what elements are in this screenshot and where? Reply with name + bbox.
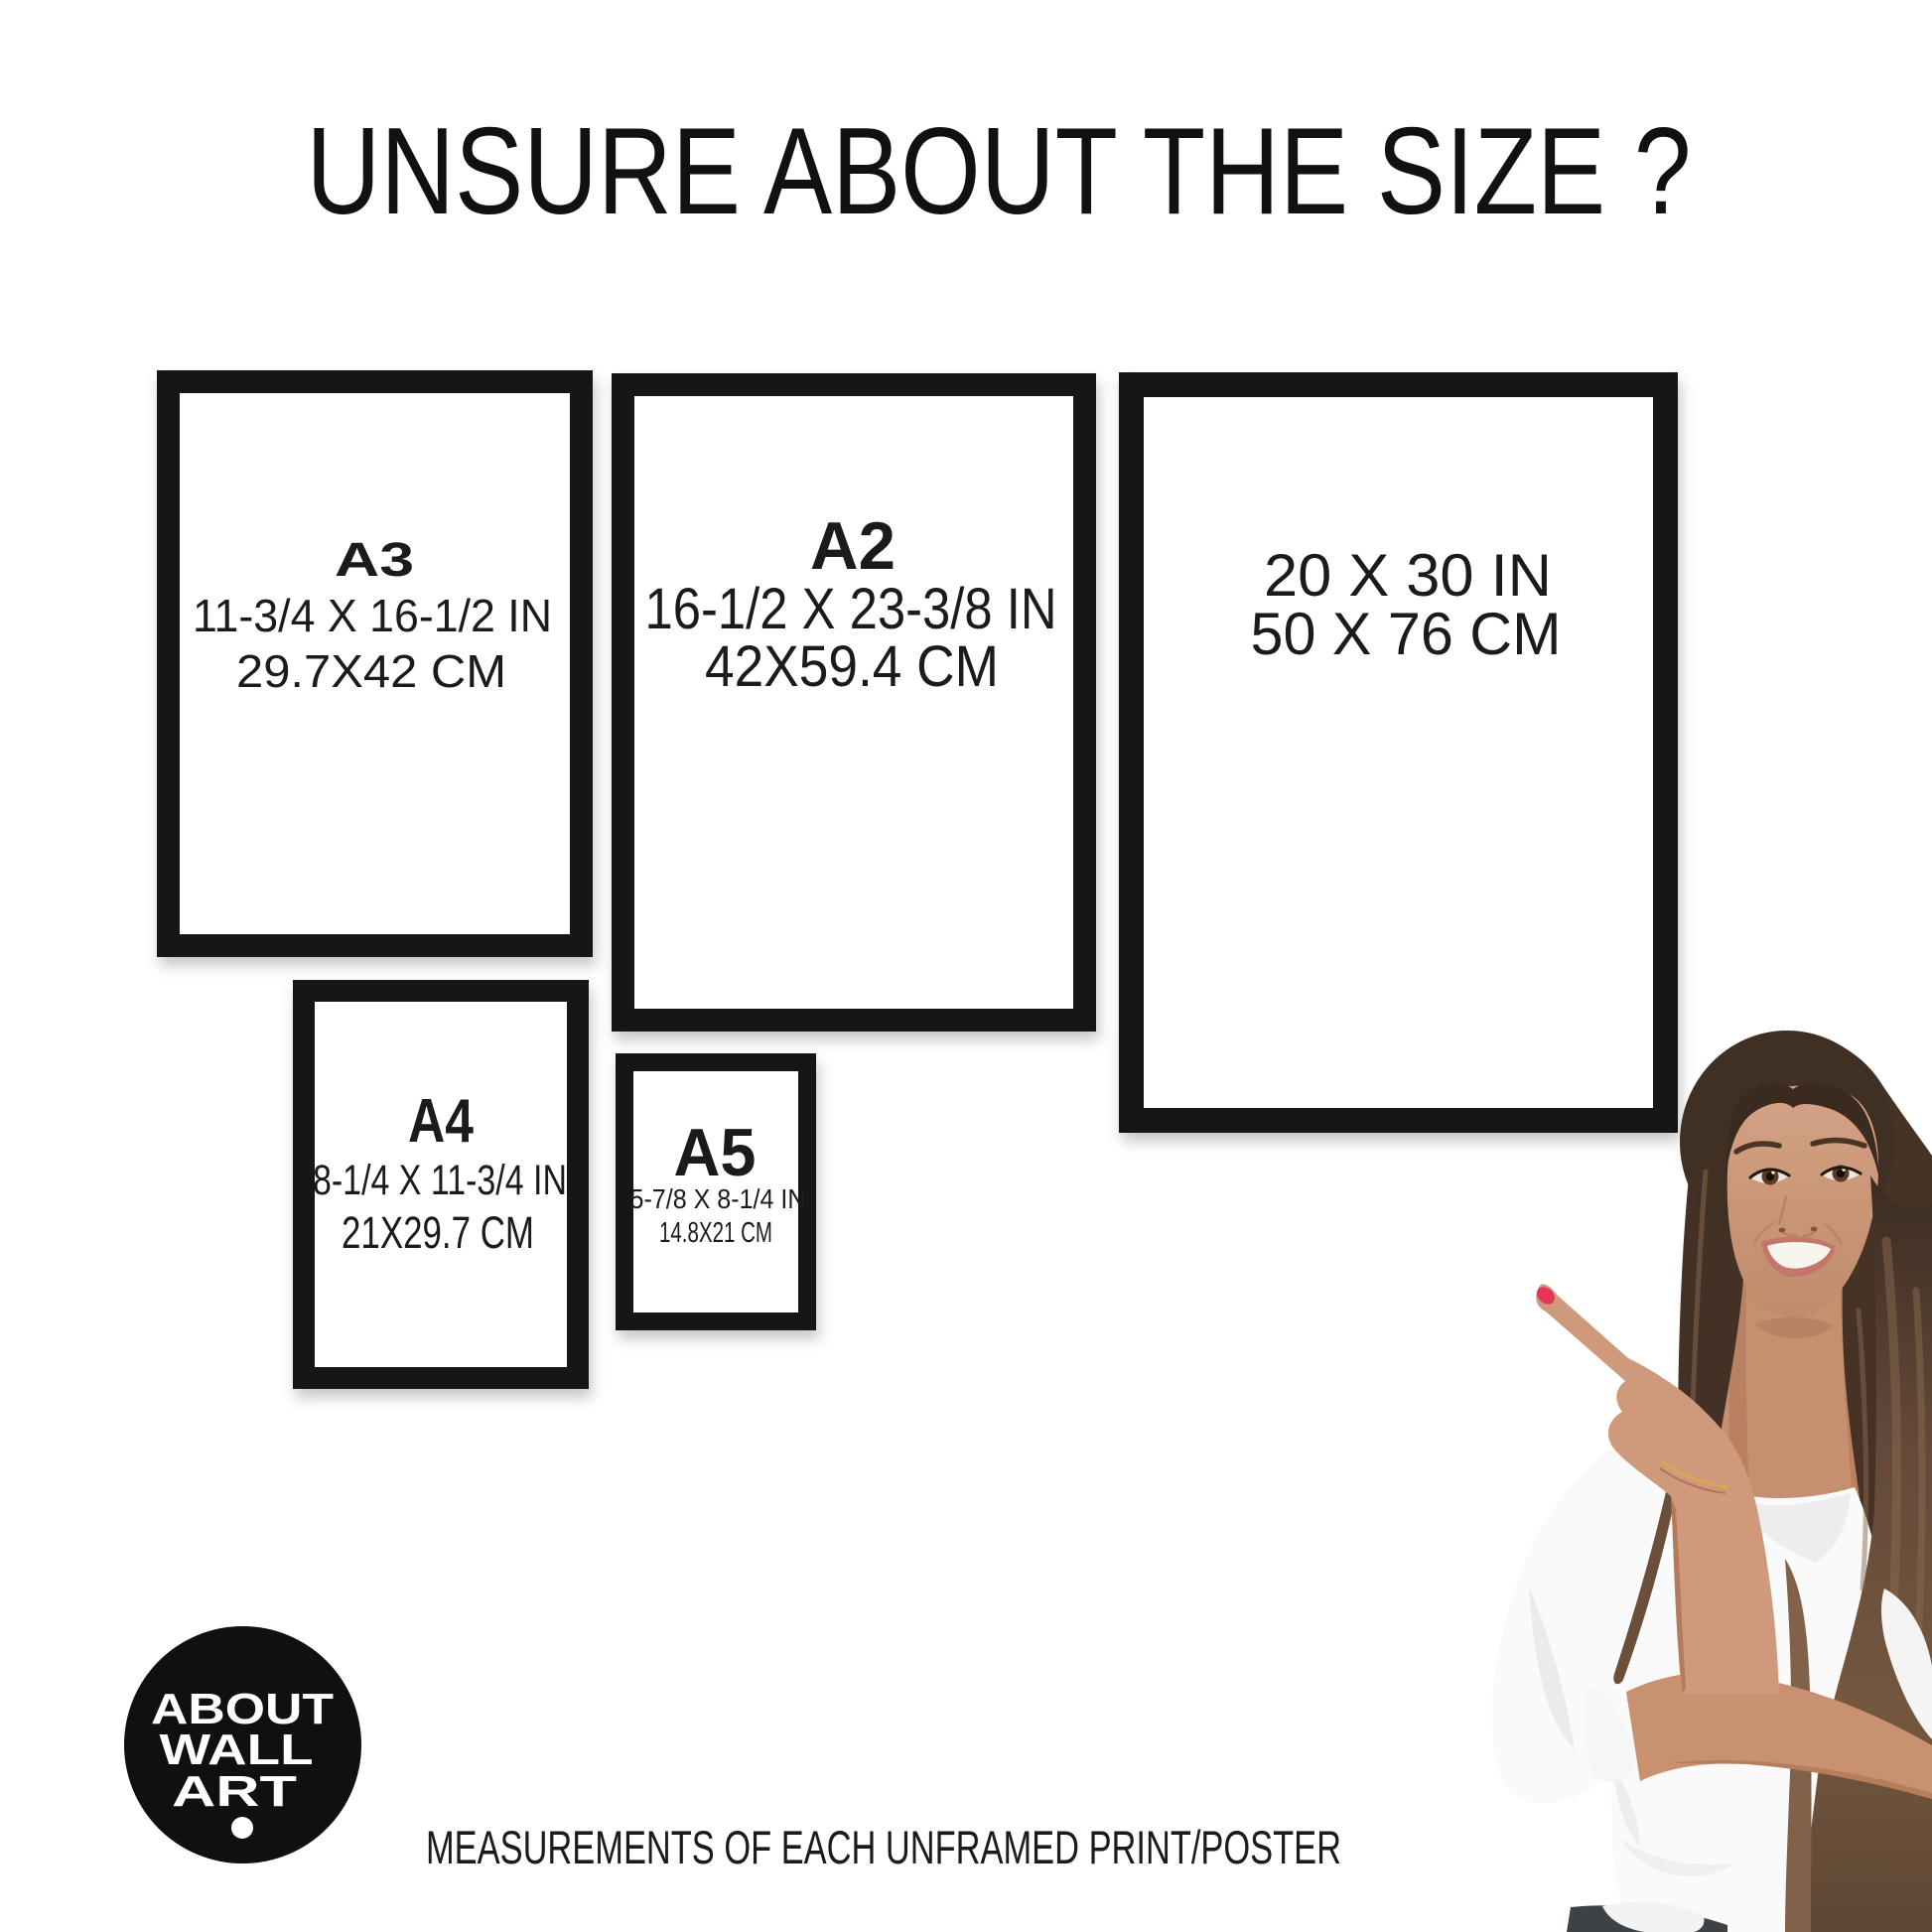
svg-text:A2: A2 (810, 508, 896, 584)
svg-text:16-1/2 X 23-3/8 IN: 16-1/2 X 23-3/8 IN (645, 577, 1057, 641)
svg-text:A4: A4 (408, 1087, 474, 1156)
svg-text:MEASUREMENTS OF EACH UNFRAMED: MEASUREMENTS OF EACH UNFRAMED PRINT/POST… (426, 1821, 1341, 1873)
svg-text:UNSURE ABOUT THE SIZE ?: UNSURE ABOUT THE SIZE ? (307, 103, 1692, 240)
svg-text:A5: A5 (674, 1115, 757, 1190)
svg-text:5-7/8 X 8-1/4 IN: 5-7/8 X 8-1/4 IN (630, 1183, 806, 1214)
svg-text:ART: ART (172, 1767, 297, 1816)
svg-text:8-1/4 X 11-3/4 IN: 8-1/4 X 11-3/4 IN (313, 1157, 567, 1204)
svg-text:11-3/4 X 16-1/2 IN: 11-3/4 X 16-1/2 IN (193, 590, 552, 641)
svg-text:29.7X42 CM: 29.7X42 CM (236, 645, 506, 697)
svg-text:42X59.4 CM: 42X59.4 CM (705, 634, 999, 699)
svg-text:50 X 76 CM: 50 X 76 CM (1251, 601, 1562, 667)
svg-text:20 X 30 IN: 20 X 30 IN (1264, 542, 1552, 609)
svg-text:14.8X21 CM: 14.8X21 CM (659, 1217, 772, 1249)
svg-text:21X29.7 CM: 21X29.7 CM (342, 1207, 534, 1258)
svg-text:A3: A3 (335, 534, 414, 587)
